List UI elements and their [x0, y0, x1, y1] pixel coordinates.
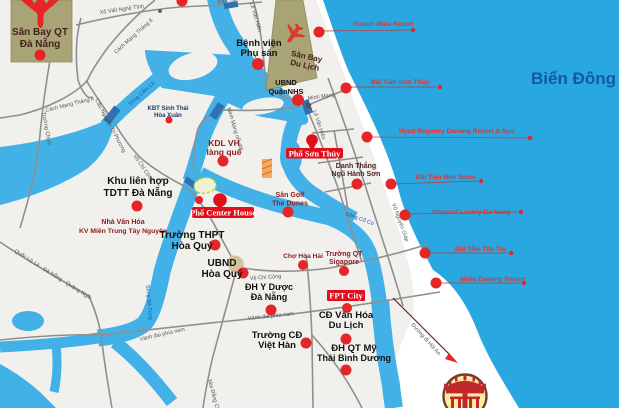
svg-text:Sân Bay QT: Sân Bay QT: [12, 27, 68, 38]
svg-text:Phố Sơn Thủy: Phố Sơn Thủy: [289, 149, 342, 159]
svg-text:Bãi Tắm Sơn Thủy: Bãi Tắm Sơn Thủy: [371, 77, 430, 86]
svg-text:ĐH Y Dược: ĐH Y Dược: [245, 282, 293, 292]
svg-text:FPT City: FPT City: [329, 291, 363, 301]
svg-text:Phụ sản: Phụ sản: [241, 48, 278, 59]
svg-text:Nhà Văn Hóa: Nhà Văn Hóa: [101, 219, 144, 226]
svg-text:Khu liên hợp: Khu liên hợp: [107, 176, 169, 187]
svg-text:Thái Bình Dương: Thái Bình Dương: [317, 353, 391, 363]
svg-text:Ngũ Hành Sơn: Ngũ Hành Sơn: [332, 171, 381, 178]
svg-text:TDTT Đà Nẵng: TDTT Đà Nẵng: [104, 186, 173, 199]
svg-text:KV Miền Trung Tây Nguyên: KV Miền Trung Tây Nguyên: [79, 226, 167, 235]
svg-text:Trường THPT: Trường THPT: [160, 230, 225, 241]
svg-text:Bãi Tắm Non Nước: Bãi Tắm Non Nước: [416, 172, 476, 181]
svg-text:Hyatt Regency Danang Resort &: Hyatt Regency Danang Resort & Spa: [399, 128, 514, 135]
svg-text:KBT Sinh Thái: KBT Sinh Thái: [148, 106, 189, 112]
svg-text:The Dunes: The Dunes: [272, 201, 308, 208]
svg-text:Biển Đông: Biển Đông: [531, 69, 616, 88]
svg-text:Phố Center House: Phố Center House: [190, 208, 256, 218]
svg-text:Danh Thắng: Danh Thắng: [336, 161, 376, 170]
svg-text:Sân Golf: Sân Golf: [276, 192, 305, 199]
svg-text:Fusion Maia Resort: Fusion Maia Resort: [353, 21, 415, 28]
svg-text:Việt Hàn: Việt Hàn: [258, 340, 296, 351]
svg-text:Vinpearl Luxury Da Nang: Vinpearl Luxury Da Nang: [432, 209, 510, 216]
svg-text:Sigapore: Sigapore: [329, 259, 359, 266]
svg-text:Hòa Quý: Hòa Quý: [201, 269, 243, 280]
svg-text:Đà Nẵng: Đà Nẵng: [20, 37, 61, 50]
svg-text:UBND: UBND: [275, 78, 297, 87]
svg-text:Hòa Xuân: Hòa Xuân: [154, 113, 182, 119]
svg-text:UBND: UBND: [208, 258, 237, 269]
svg-text:QuậnNHS: QuậnNHS: [268, 87, 303, 96]
svg-text:Đà Nẵng: Đà Nẵng: [251, 291, 288, 302]
svg-text:Trường QT: Trường QT: [326, 251, 364, 258]
svg-text:làng quê: làng quê: [207, 147, 242, 157]
svg-text:Bãi Tắm Tân Trà: Bãi Tắm Tân Trà: [455, 244, 506, 253]
svg-text:Melia Danang Resort: Melia Danang Resort: [460, 276, 526, 283]
svg-text:Hòa Quý: Hòa Quý: [171, 241, 213, 252]
svg-text:Du Lịch: Du Lịch: [329, 320, 364, 331]
svg-text:Chợ Hòa Hải: Chợ Hòa Hải: [283, 253, 323, 260]
